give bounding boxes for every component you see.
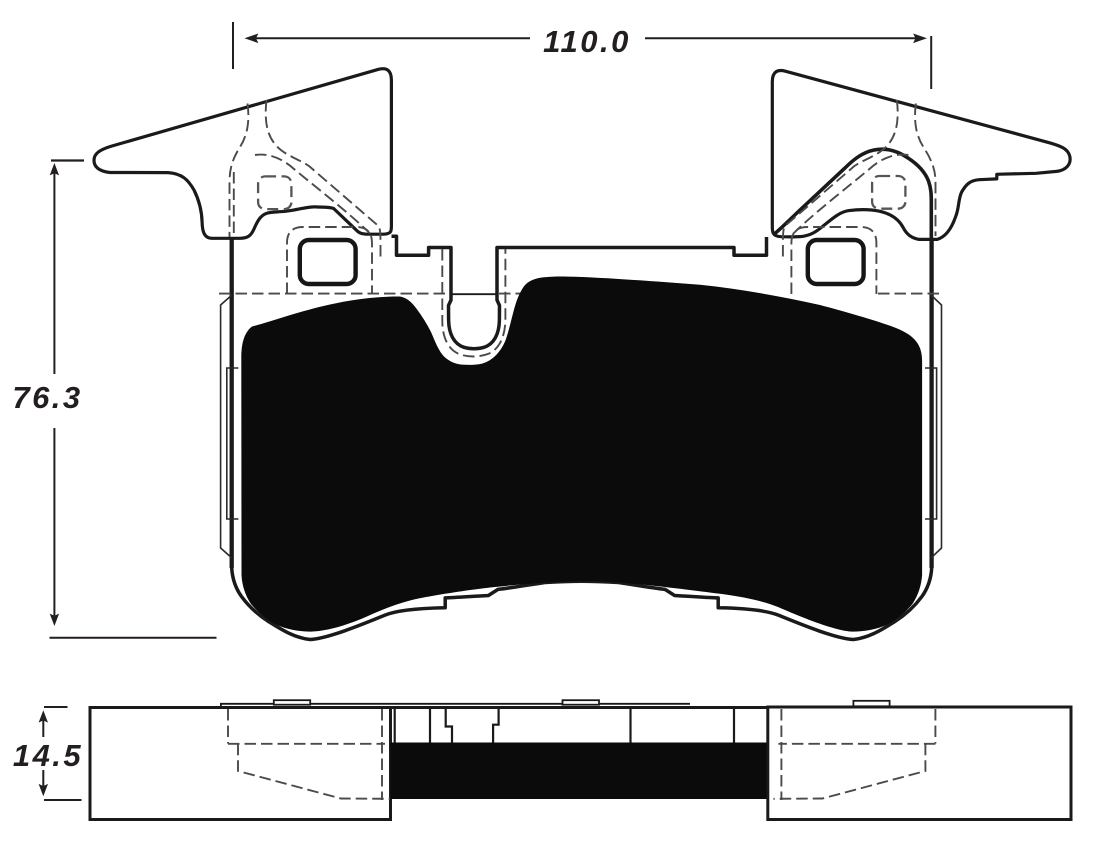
svg-text:14.5: 14.5	[13, 738, 83, 773]
svg-text:110.0: 110.0	[543, 24, 631, 59]
svg-text:76.3: 76.3	[12, 380, 82, 415]
